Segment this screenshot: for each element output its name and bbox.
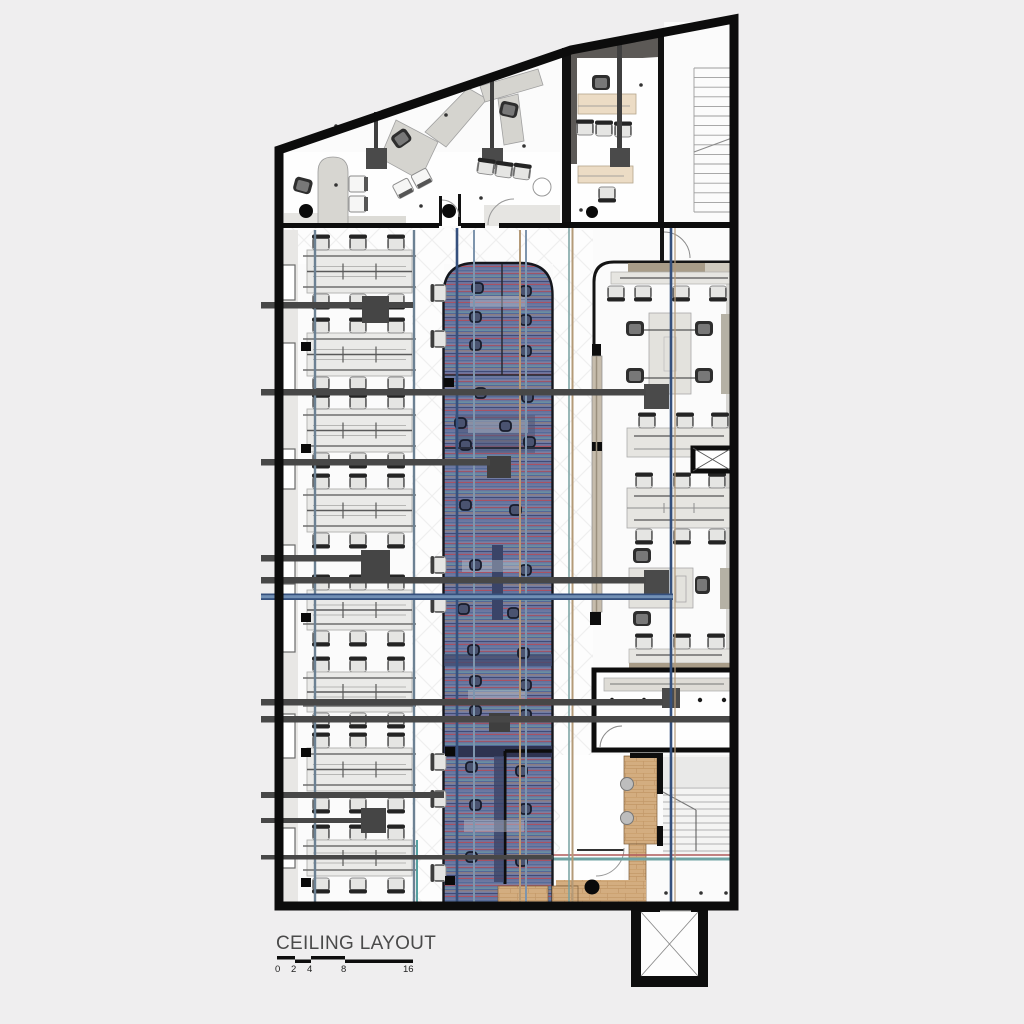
svg-text:2: 2 <box>291 964 296 975</box>
svg-text:CEILING LAYOUT: CEILING LAYOUT <box>276 933 436 954</box>
svg-text:8: 8 <box>341 964 346 975</box>
svg-text:0: 0 <box>275 964 280 975</box>
svg-text:4: 4 <box>307 964 312 975</box>
svg-text:16: 16 <box>403 964 414 975</box>
